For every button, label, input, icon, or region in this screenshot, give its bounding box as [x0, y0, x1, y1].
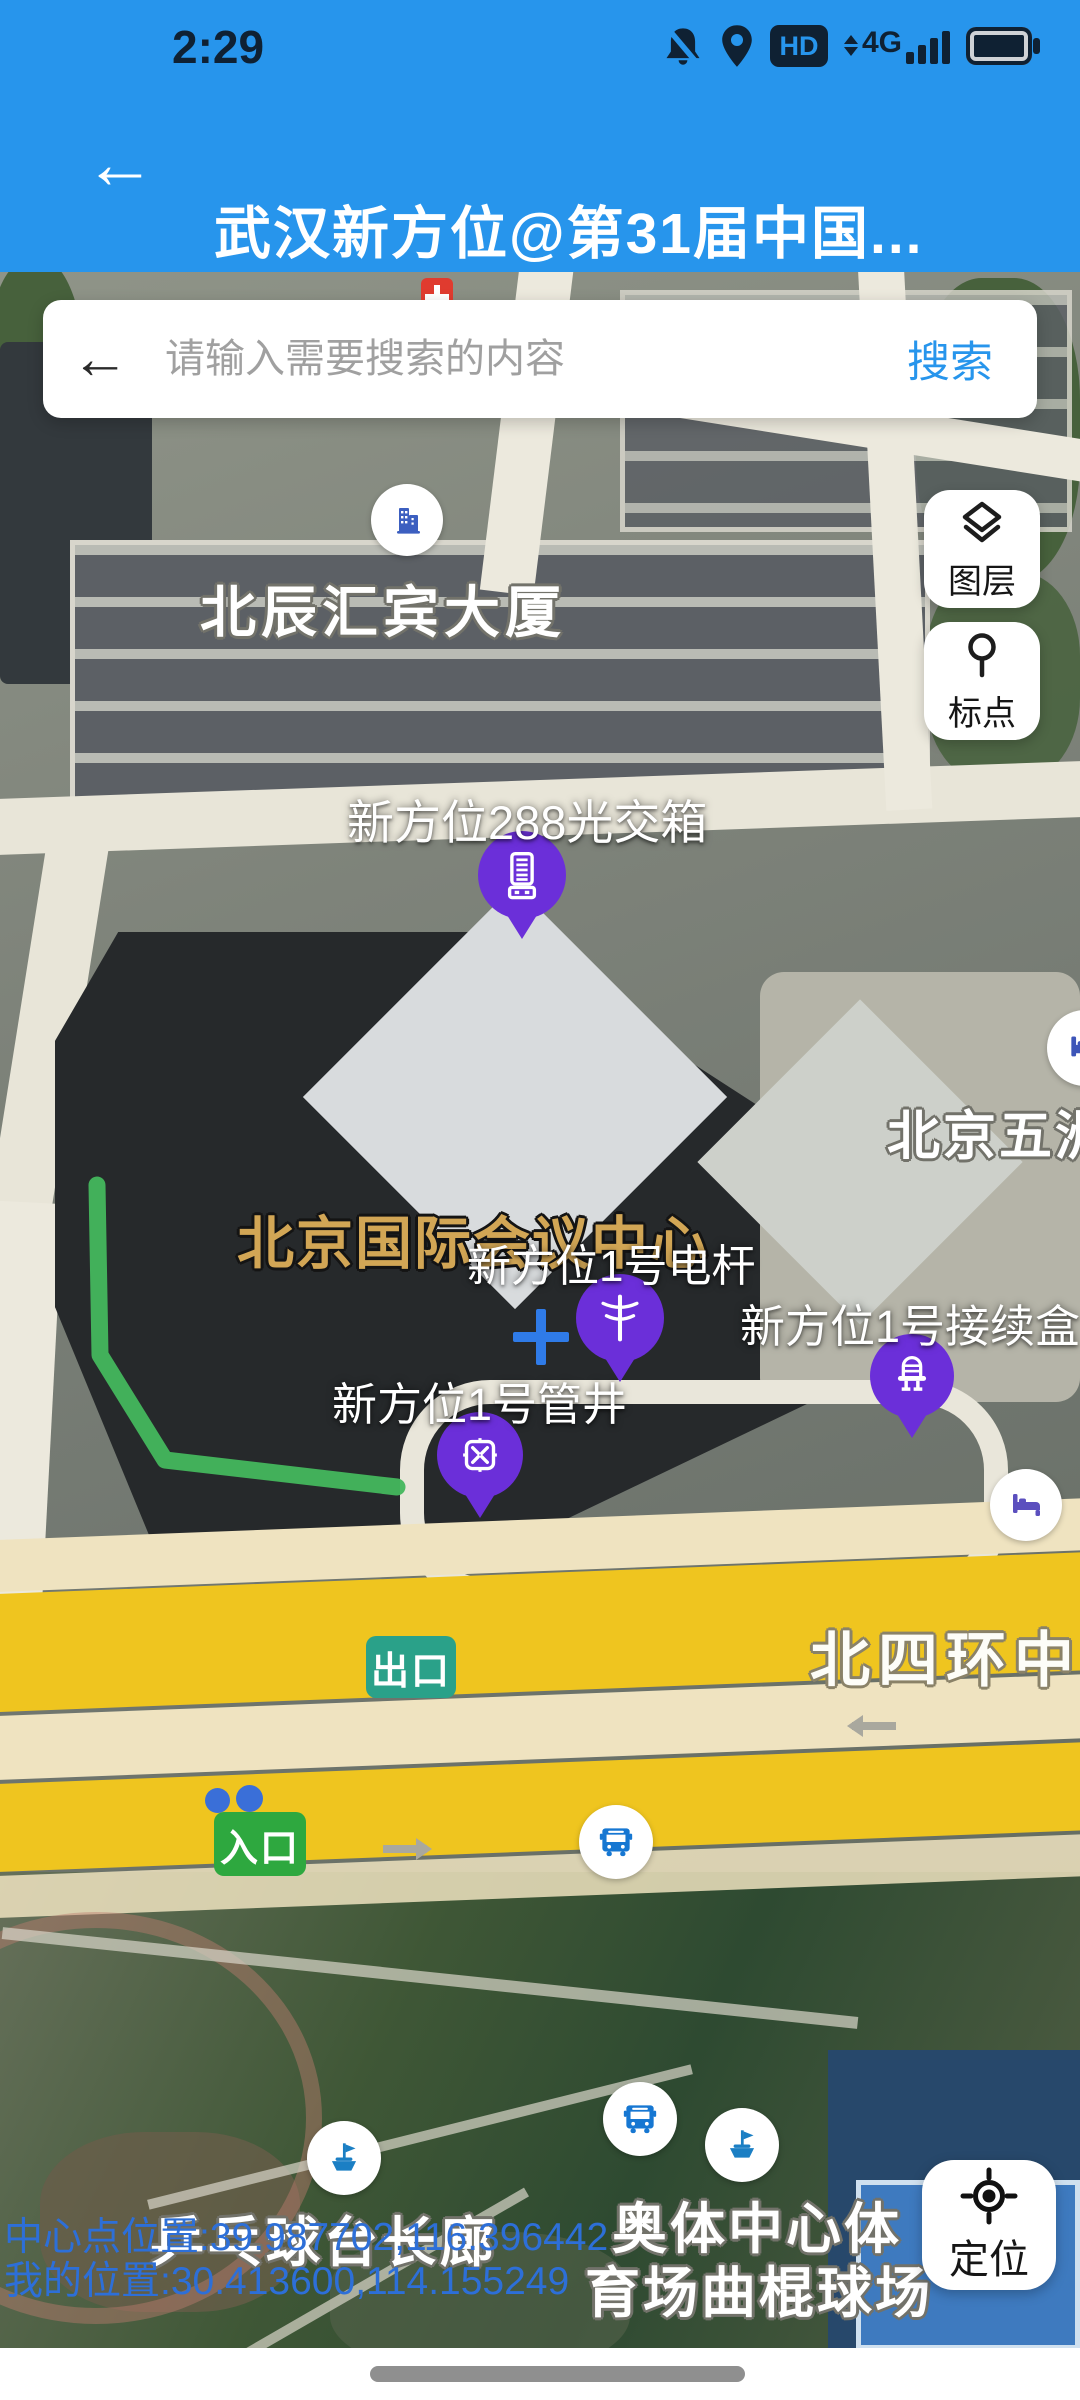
bus-stop-poi[interactable]: [579, 1805, 653, 1879]
building-icon: [387, 500, 427, 540]
map-center-crosshair: [513, 1309, 569, 1365]
bed-icon: [1006, 1485, 1046, 1525]
page-title: 武汉新方位@第31届中国...: [214, 188, 924, 270]
sports-venue-poi[interactable]: [705, 2108, 779, 2182]
hd-voice-icon: HD: [770, 25, 828, 67]
mark-point-label: 标点: [948, 686, 1016, 735]
home-indicator[interactable]: [370, 2366, 745, 2382]
layers-icon: [953, 496, 1011, 552]
bus-icon: [619, 2098, 661, 2140]
exit-badge: 出口: [366, 1636, 456, 1698]
layers-button[interactable]: 图层: [924, 490, 1040, 608]
map-canvas[interactable]: ← 搜索 图层 标点: [0, 272, 1080, 2348]
search-bar: ← 搜索: [43, 300, 1037, 418]
location-icon: [720, 23, 754, 69]
bed-icon: [1064, 1027, 1080, 1069]
place-label: 北京五洲: [887, 1094, 1080, 1170]
app-bar: ← 武汉新方位@第31届中国...: [0, 92, 1080, 272]
back-arrow-icon[interactable]: ←: [84, 128, 156, 200]
search-input[interactable]: [163, 336, 907, 383]
entrance-dot: [205, 1788, 230, 1813]
mark-point-button[interactable]: 标点: [924, 622, 1040, 740]
entrance-badge: 入口: [214, 1812, 306, 1876]
top-chrome: 2:29 HD 4G: [0, 0, 1080, 272]
locate-label: 定位: [949, 2227, 1029, 2285]
fiber-cabinet-icon: [495, 848, 549, 902]
asset-label: 新方位1号电杆: [467, 1230, 755, 1294]
telegraph-pole-icon: [593, 1291, 647, 1345]
asset-label: 新方位1号管井: [332, 1368, 627, 1433]
sports-venue-icon: [721, 2124, 763, 2166]
asset-label: 新方位1号接续盒: [740, 1290, 1080, 1355]
search-button[interactable]: 搜索: [907, 328, 993, 390]
network-type-label: 4G: [862, 28, 902, 58]
battery-icon: [966, 27, 1032, 65]
road-direction-arrow: [852, 1722, 896, 1730]
system-nav-bar: [0, 2348, 1080, 2400]
mute-bell-icon: [662, 24, 704, 68]
sports-venue-poi[interactable]: [307, 2121, 381, 2195]
signal-bars-icon: [906, 31, 950, 64]
pin-icon: [953, 628, 1011, 684]
road-direction-arrow: [383, 1845, 427, 1853]
splice-closure-icon: [886, 1350, 938, 1402]
locate-button[interactable]: 定位: [922, 2160, 1056, 2290]
phone-screen: 2:29 HD 4G: [0, 0, 1080, 2400]
my-location-coordinates: 我的位置:30.413600,114.155249: [4, 2250, 569, 2306]
hotel-poi[interactable]: [990, 1469, 1062, 1541]
bus-stop-poi[interactable]: [603, 2082, 677, 2156]
office-building-poi[interactable]: [371, 484, 443, 556]
data-activity-arrows: [844, 35, 858, 56]
place-label: 北辰汇宾大厦: [200, 568, 566, 649]
place-label: 育场曲棍球场: [585, 2248, 933, 2328]
asset-label: 新方位288光交箱: [347, 784, 707, 853]
mobile-network-icon: 4G: [844, 28, 950, 64]
clock: 2:29: [172, 20, 264, 74]
search-back-icon[interactable]: ←: [71, 330, 129, 388]
sports-venue-icon: [323, 2137, 365, 2179]
pipe-well-icon: [453, 1428, 507, 1482]
bus-icon: [595, 1821, 637, 1863]
status-icons: HD 4G: [662, 22, 1032, 70]
locate-target-icon: [958, 2165, 1020, 2227]
layers-label: 图层: [948, 554, 1016, 603]
road-label: 北四环中: [810, 1612, 1080, 1699]
entrance-dot: [236, 1785, 263, 1812]
status-bar: 2:29 HD 4G: [0, 0, 1080, 92]
